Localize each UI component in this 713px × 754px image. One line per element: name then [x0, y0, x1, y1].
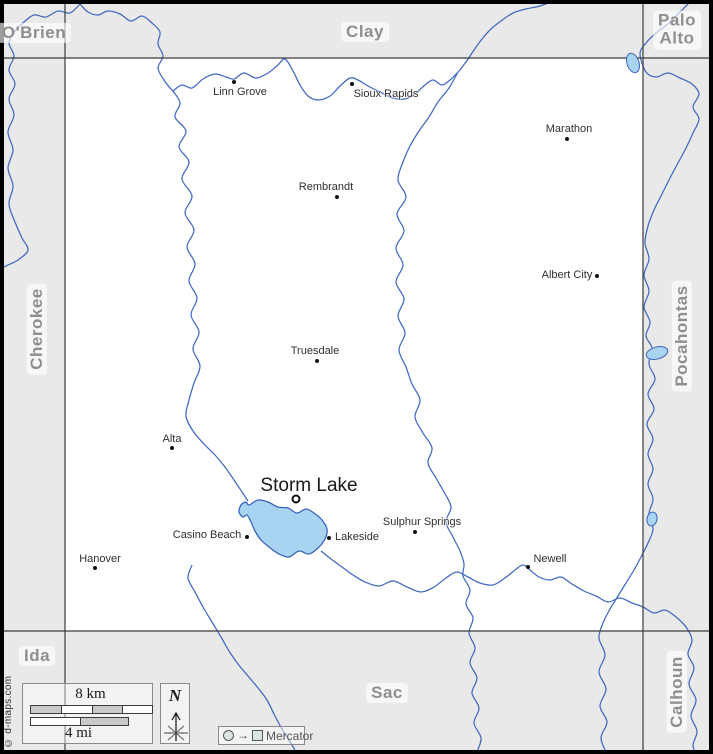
scale-segment — [92, 706, 122, 713]
scale-km-bar — [30, 705, 153, 714]
town-label-alta: Alta — [163, 433, 182, 445]
scale-segment — [61, 706, 91, 713]
scale-segment — [31, 706, 61, 713]
county-label-o-brien: O'Brien — [0, 23, 71, 43]
scale-km-label: 8 km — [30, 686, 151, 703]
north-arrow: N — [160, 683, 190, 744]
town-marker-albert-city — [595, 274, 599, 278]
town-label-linn-grove: Linn Grove — [213, 86, 267, 98]
town-label-sioux-rapids: Sioux Rapids — [354, 88, 419, 100]
town-marker-linn-grove — [232, 80, 236, 84]
town-label-marathon: Marathon — [546, 123, 592, 135]
scale-segment — [80, 718, 129, 725]
town-marker-sulphur-springs — [413, 530, 417, 534]
town-marker-marathon — [565, 137, 569, 141]
town-marker-lakeside — [327, 536, 331, 540]
scale-segment — [31, 718, 80, 725]
arrow-icon: → — [237, 729, 249, 741]
town-label-rembrandt: Rembrandt — [299, 181, 353, 193]
county-area — [65, 58, 643, 631]
town-marker-newell — [526, 565, 530, 569]
projection-name: Mercator — [266, 729, 313, 743]
town-label-lakeside: Lakeside — [335, 531, 379, 543]
town-marker-truesdale — [315, 359, 319, 363]
map-graphics — [0, 0, 713, 754]
county-label-ida: Ida — [19, 646, 55, 666]
compass-icon — [163, 707, 189, 743]
town-label-storm-lake: Storm Lake — [260, 475, 357, 497]
county-label-cherokee: Cherokee — [27, 283, 47, 374]
county-label-clay: Clay — [341, 22, 389, 42]
town-label-hanover: Hanover — [79, 553, 121, 565]
county-label-palo-alto: Palo Alto — [653, 11, 701, 50]
town-label-albert-city: Albert City — [542, 269, 593, 281]
copyright: © d-maps.com — [3, 668, 14, 748]
town-marker-sioux-rapids — [350, 82, 354, 86]
north-label: N — [161, 686, 189, 706]
sphere-symbol-icon — [223, 730, 234, 741]
town-marker-alta — [170, 446, 174, 450]
town-marker-casino-beach — [245, 535, 249, 539]
town-label-casino-beach: Casino Beach — [173, 529, 242, 541]
scale-mi-label: 4 mi — [30, 725, 127, 742]
plane-symbol-icon — [252, 730, 263, 741]
town-marker-rembrandt — [335, 195, 339, 199]
town-marker-hanover — [93, 566, 97, 570]
county-label-calhoun: Calhoun — [667, 651, 687, 733]
town-label-sulphur-springs: Sulphur Springs — [383, 516, 461, 528]
county-label-sac: Sac — [366, 683, 408, 703]
map-canvas: O'BrienClayPalo AltoCherokeePocahontasId… — [0, 0, 713, 754]
town-label-truesdale: Truesdale — [291, 345, 340, 357]
town-label-newell: Newell — [533, 553, 566, 565]
projection-legend: → Mercator — [218, 726, 305, 745]
scale-bar: 8 km 4 mi — [22, 683, 153, 744]
county-label-pocahontas: Pocahontas — [672, 280, 692, 391]
scale-segment — [122, 706, 152, 713]
